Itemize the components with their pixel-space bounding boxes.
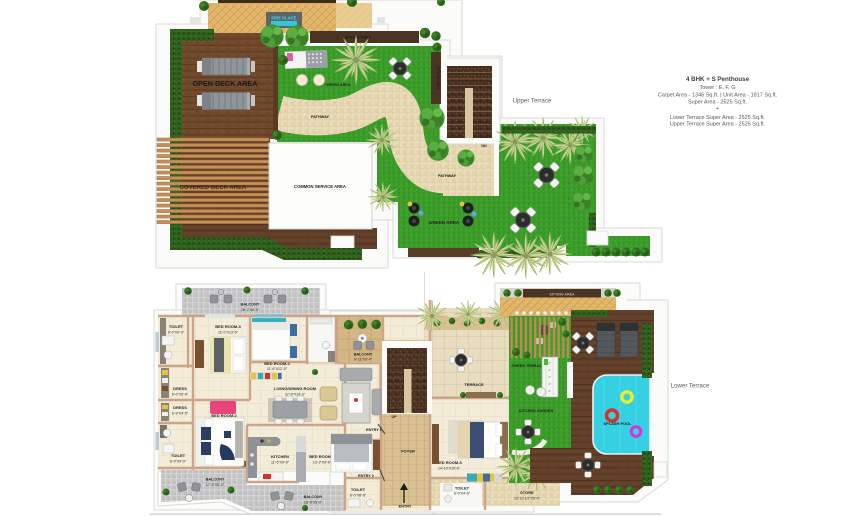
svg-text:LIVING/DINING ROOM: LIVING/DINING ROOM bbox=[274, 386, 317, 391]
svg-text:SITTING AREA: SITTING AREA bbox=[436, 66, 440, 90]
svg-text:GREEN TERRACE: GREEN TERRACE bbox=[512, 364, 545, 368]
svg-text:BED ROOM-4: BED ROOM-4 bbox=[264, 361, 290, 366]
svg-text:17'-4"X6'-0": 17'-4"X6'-0" bbox=[206, 483, 225, 487]
svg-text:DN: DN bbox=[481, 144, 487, 148]
svg-text:BED ROOM-3: BED ROOM-3 bbox=[215, 324, 241, 329]
svg-text:9'-11"X9'-4": 9'-11"X9'-4" bbox=[354, 358, 373, 362]
svg-text:TOILET: TOILET bbox=[351, 487, 366, 492]
svg-text:BED ROOM-5: BED ROOM-5 bbox=[436, 460, 462, 465]
svg-text:DRESS: DRESS bbox=[173, 386, 187, 391]
svg-text:COMMON SERVICE AREA: COMMON SERVICE AREA bbox=[294, 184, 346, 189]
svg-text:DRESS: DRESS bbox=[173, 405, 187, 410]
svg-text:11'-6"X9'-0": 11'-6"X9'-0" bbox=[271, 461, 290, 465]
svg-text:KITCHEN: KITCHEN bbox=[271, 454, 289, 459]
svg-text:ENTRY 2: ENTRY 2 bbox=[358, 474, 374, 478]
svg-text:BALCONY: BALCONY bbox=[354, 353, 373, 357]
svg-text:STORE: STORE bbox=[520, 490, 534, 495]
svg-text:Upper Terrace: Upper Terrace bbox=[513, 98, 552, 105]
svg-text:Super Area - 2525 Sq.ft.: Super Area - 2525 Sq.ft. bbox=[688, 100, 747, 106]
svg-text:6'-0"X4'-6": 6'-0"X4'-6" bbox=[454, 492, 471, 496]
svg-text:OPEN DECK AREA: OPEN DECK AREA bbox=[193, 79, 258, 88]
svg-text:Lower Terrace: Lower Terrace bbox=[671, 382, 710, 389]
svg-text:GREEN AREA: GREEN AREA bbox=[325, 83, 350, 87]
svg-text:KITCHEN GARDEN: KITCHEN GARDEN bbox=[519, 409, 554, 413]
svg-text:Lower Terrace Super Area - 252: Lower Terrace Super Area - 2525 Sq.ft. bbox=[670, 115, 766, 121]
svg-text:BALCONY: BALCONY bbox=[241, 303, 260, 307]
svg-text:ENTRY: ENTRY bbox=[399, 505, 412, 509]
svg-text:FOYER: FOYER bbox=[401, 449, 415, 454]
svg-text:SITTING AREA: SITTING AREA bbox=[549, 293, 575, 297]
svg-text:Upper Terrace Super Area - 252: Upper Terrace Super Area - 2525 Sq.ft. bbox=[670, 122, 766, 128]
svg-text:TERRACE: TERRACE bbox=[464, 382, 484, 387]
svg-text:TOILET: TOILET bbox=[171, 453, 186, 458]
svg-text:28'-2"X6'-0": 28'-2"X6'-0" bbox=[241, 308, 260, 312]
svg-text:TOILET: TOILET bbox=[169, 324, 184, 329]
svg-text:13'-10 1/2"X5'-0": 13'-10 1/2"X5'-0" bbox=[514, 497, 541, 501]
svg-text:SPLASH POOL: SPLASH POOL bbox=[604, 421, 633, 426]
svg-text:ENTRY 1: ENTRY 1 bbox=[366, 428, 382, 432]
svg-text:6'-0"X8'-6": 6'-0"X8'-6" bbox=[350, 494, 367, 498]
svg-text:BALCONY: BALCONY bbox=[304, 495, 323, 499]
svg-text:COVERED DECK AREA: COVERED DECK AREA bbox=[180, 185, 247, 191]
svg-text:6'-9"X4'-5": 6'-9"X4'-5" bbox=[172, 412, 189, 416]
svg-text:14'-10"X15'-6": 14'-10"X15'-6" bbox=[438, 467, 461, 471]
svg-text:4 BHK + S Penthouse: 4 BHK + S Penthouse bbox=[686, 76, 750, 83]
svg-text:BALCONY: BALCONY bbox=[206, 478, 225, 482]
svg-text:6'-0"X9'-0": 6'-0"X9'-0" bbox=[170, 460, 187, 464]
svg-text:11'-6"X12'-0": 11'-6"X12'-0" bbox=[267, 367, 288, 371]
svg-text:PATHWAY: PATHWAY bbox=[438, 174, 457, 178]
svg-text:18'-9"X5'-0": 18'-9"X5'-0" bbox=[304, 501, 323, 505]
svg-text:6'-0"X6'-5": 6'-0"X6'-5" bbox=[172, 393, 189, 397]
svg-text:TOILET: TOILET bbox=[455, 486, 470, 491]
svg-text:13'-2"X9'-6": 13'-2"X9'-6" bbox=[313, 461, 332, 465]
svg-text:SITTING AREA: SITTING AREA bbox=[345, 36, 372, 40]
svg-text:+: + bbox=[716, 106, 719, 112]
svg-text:Tower : E, F, G: Tower : E, F, G bbox=[699, 85, 735, 91]
svg-text:PATHWAY: PATHWAY bbox=[311, 115, 330, 119]
svg-text:GREEN AREA: GREEN AREA bbox=[429, 220, 460, 225]
svg-text:Carpet Area - 1346 Sq.ft. | Un: Carpet Area - 1346 Sq.ft. | Unit Area - … bbox=[658, 93, 778, 99]
svg-text:11'-0"X13'-9": 11'-0"X13'-9" bbox=[218, 331, 239, 335]
svg-text:UP: UP bbox=[392, 415, 398, 419]
svg-text:6'-0"X9'-0": 6'-0"X9'-0" bbox=[168, 331, 185, 335]
svg-text:FIRE PLACE: FIRE PLACE bbox=[272, 16, 297, 21]
